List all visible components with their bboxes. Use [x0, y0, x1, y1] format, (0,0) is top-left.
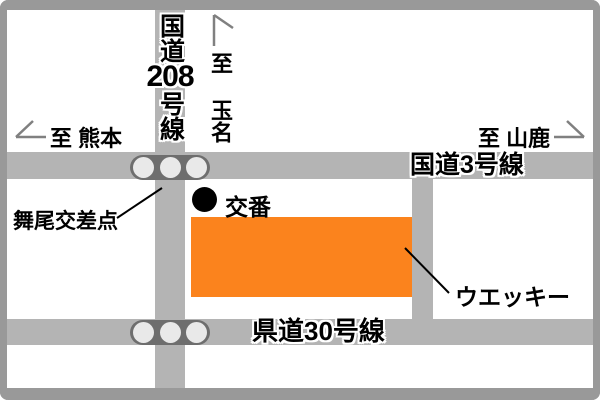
route208-label-number: 208 — [146, 63, 193, 91]
koban-label: 交番 — [225, 188, 271, 222]
frame-border-left — [0, 0, 7, 400]
maio-leader-line — [114, 184, 166, 222]
signal-lamp-icon — [160, 322, 181, 343]
maio-intersection-label: 舞尾交差点 — [13, 205, 118, 235]
frame-border-top — [0, 0, 600, 10]
signal-lamp-icon — [133, 157, 154, 178]
route208-label-top: 国道 — [157, 13, 184, 63]
signal-lamp-icon — [133, 322, 154, 343]
arrow-up-icon — [204, 12, 238, 48]
route208-label: 国道 208 号線 — [138, 13, 202, 141]
signal-lamp-icon — [186, 322, 207, 343]
route208-label-bottom: 号線 — [157, 91, 184, 141]
signal-lamp-icon — [186, 157, 207, 178]
route30-label: 県道30号線 — [252, 318, 385, 345]
route3-label: 国道3号線 — [410, 152, 524, 179]
route-map: 国道 208 号線 至 玉名 至 熊本 至 山鹿 国道3号線 県道30号線 舞尾… — [0, 0, 600, 400]
signal-lamp-icon — [160, 157, 181, 178]
direction-label-tamana: 至 玉名 — [204, 52, 236, 143]
frame-border-bottom — [0, 388, 600, 400]
uekky-label: ウエッキー — [455, 278, 570, 312]
traffic-signal-icon-bottom — [130, 320, 210, 345]
uekky-building — [191, 217, 412, 297]
direction-label-yamaga: 至 山鹿 — [478, 121, 550, 153]
koban-dot-icon — [192, 187, 217, 212]
arrow-right-icon — [552, 118, 586, 140]
uekky-leader-line — [403, 246, 453, 298]
traffic-signal-icon-top — [130, 155, 210, 180]
frame-border-right — [593, 0, 600, 400]
arrow-left-icon — [14, 118, 48, 140]
direction-label-kumamoto: 至 熊本 — [50, 121, 122, 153]
